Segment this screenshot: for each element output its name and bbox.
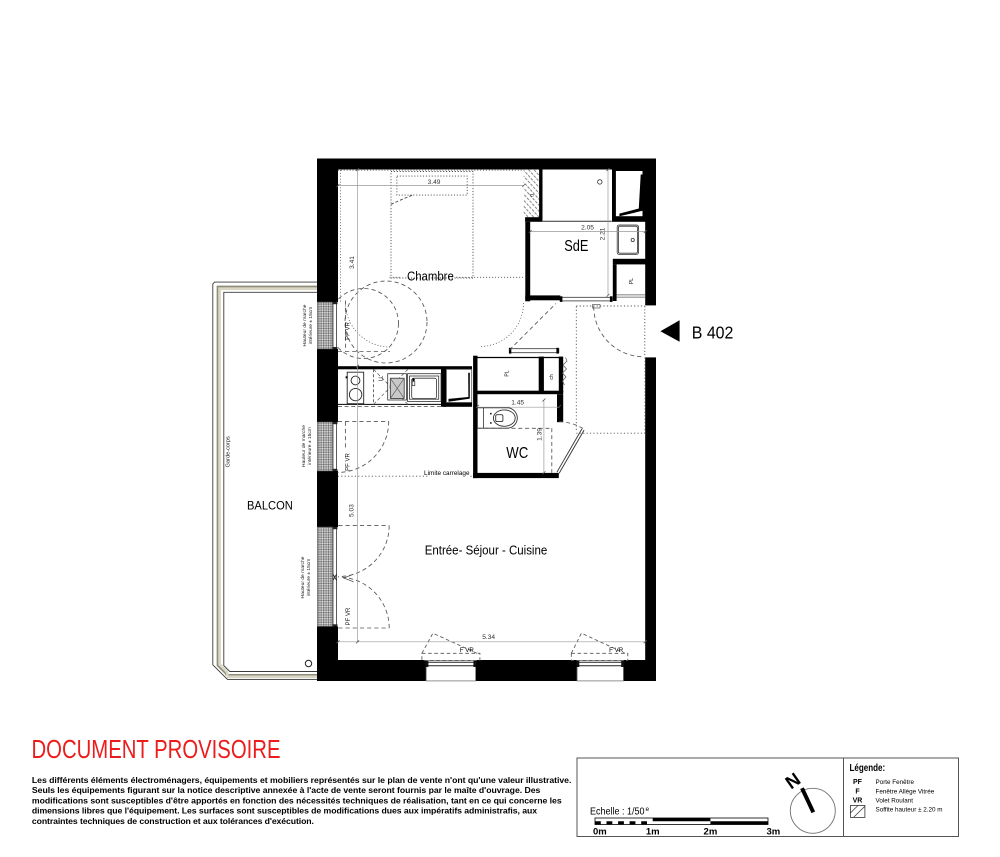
svg-text:intérieure ± 15cm: intérieure ± 15cm	[308, 307, 314, 345]
svg-text:LL: LL	[379, 376, 385, 382]
svg-text:Garde-corps: Garde-corps	[226, 436, 232, 467]
svg-text:F VR: F VR	[609, 647, 624, 654]
svg-text:contraintes techniques de cons: contraintes techniques de construction e…	[32, 816, 314, 826]
svg-text:d: d	[530, 194, 536, 197]
svg-text:intérieure ± 15cm: intérieure ± 15cm	[307, 427, 313, 465]
svg-text:Les différents éléments électr: Les différents éléments électroménagers,…	[32, 775, 572, 785]
svg-text:F: F	[855, 788, 860, 795]
svg-text:Chambre: Chambre	[407, 269, 454, 284]
svg-text:PF VR: PF VR	[346, 607, 352, 625]
svg-text:ch: ch	[549, 374, 555, 380]
svg-text:1.39: 1.39	[536, 428, 543, 441]
svg-text:Hauteur de marche: Hauteur de marche	[302, 304, 308, 346]
svg-text:DOCUMENT PROVISOIRE: DOCUMENT PROVISOIRE	[32, 736, 281, 764]
svg-text:0m: 0m	[593, 827, 607, 838]
svg-text:3m: 3m	[767, 827, 781, 838]
svg-text:Fenêtre Allège Vitrée: Fenêtre Allège Vitrée	[876, 788, 935, 795]
svg-text:Volet Roulant: Volet Roulant	[876, 798, 914, 805]
svg-text:Entrée- Séjour - Cuisine: Entrée- Séjour - Cuisine	[425, 543, 548, 558]
svg-text:WC: WC	[506, 445, 528, 462]
svg-text:SdE: SdE	[564, 238, 588, 255]
svg-text:B 402: B 402	[692, 323, 734, 343]
svg-text:PF VR: PF VR	[346, 453, 352, 471]
svg-text:Limite carrelage: Limite carrelage	[424, 470, 470, 477]
svg-text:Légende:: Légende:	[850, 763, 886, 774]
svg-text:PF: PF	[853, 779, 863, 786]
svg-text:Soffite hauteur ± 2.20 m: Soffite hauteur ± 2.20 m	[876, 807, 943, 814]
svg-text:5.34: 5.34	[482, 634, 495, 641]
svg-text:1.45: 1.45	[511, 400, 524, 407]
svg-text:F VR: F VR	[460, 647, 475, 654]
svg-text:Echelle : 1/50: Echelle : 1/50	[590, 806, 645, 817]
svg-text:BALCON: BALCON	[247, 501, 293, 513]
svg-text:Hauteur de marche: Hauteur de marche	[301, 425, 307, 467]
svg-text:Seuls les équipements figurant: Seuls les équipements figurant sur la no…	[32, 785, 541, 795]
svg-text:PL: PL	[629, 278, 635, 284]
svg-text:5.03: 5.03	[349, 504, 356, 517]
svg-text:e: e	[646, 806, 650, 813]
svg-text:dimensions libres que l'équipe: dimensions libres que l'équipement. Les …	[32, 806, 537, 816]
svg-text:2.05: 2.05	[581, 224, 594, 231]
svg-text:PF VR: PF VR	[346, 322, 352, 340]
svg-text:Hauteur de marche: Hauteur de marche	[300, 556, 306, 598]
svg-text:2m: 2m	[704, 827, 718, 838]
svg-text:intérieure ± 15cm: intérieure ± 15cm	[306, 559, 312, 597]
svg-text:1m: 1m	[646, 827, 660, 838]
svg-text:3.41: 3.41	[349, 256, 356, 269]
svg-text:PL: PL	[505, 370, 511, 376]
svg-text:3.49: 3.49	[428, 179, 441, 186]
svg-text:VR: VR	[853, 798, 863, 805]
svg-text:modifications sont susceptible: modifications sont susceptibles d'être a…	[32, 795, 562, 805]
svg-text:2.21: 2.21	[599, 227, 606, 240]
svg-text:Porte Fenêtre: Porte Fenêtre	[876, 779, 915, 786]
